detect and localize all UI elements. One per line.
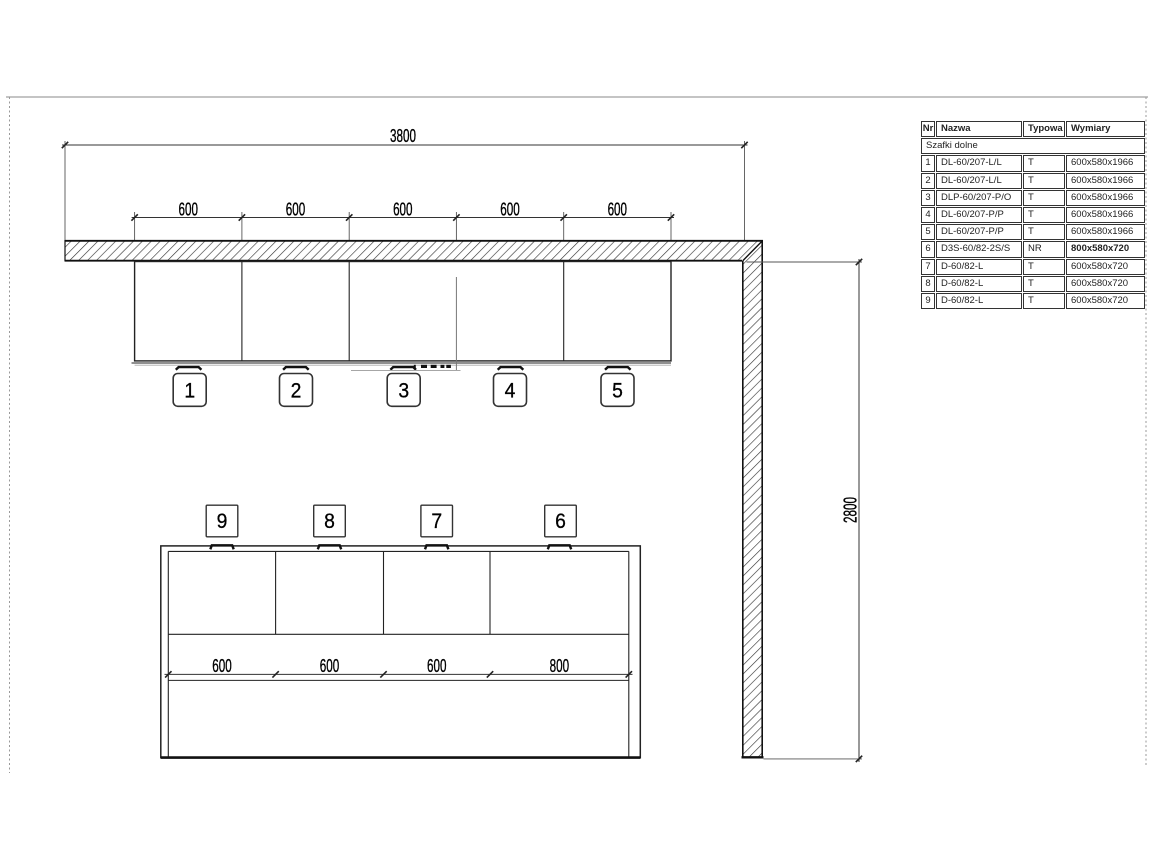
svg-text:600: 600 [608, 200, 627, 220]
svg-text:9: 9 [217, 509, 228, 533]
svg-text:600: 600 [427, 656, 446, 676]
svg-text:600: 600 [286, 200, 305, 220]
svg-text:600: 600 [500, 200, 519, 220]
svg-text:600: 600 [320, 656, 339, 676]
svg-text:600: 600 [178, 200, 197, 220]
svg-text:2: 2 [291, 378, 302, 402]
svg-text:3: 3 [398, 378, 409, 402]
svg-text:800: 800 [550, 656, 569, 676]
svg-text:6: 6 [555, 509, 566, 533]
svg-text:1: 1 [184, 378, 195, 402]
svg-text:4: 4 [505, 378, 516, 402]
svg-text:8: 8 [324, 509, 335, 533]
svg-text:2800: 2800 [841, 497, 861, 523]
svg-text:5: 5 [612, 378, 623, 402]
svg-text:600: 600 [212, 656, 231, 676]
svg-text:3800: 3800 [390, 126, 416, 146]
svg-text:7: 7 [431, 509, 442, 533]
svg-text:600: 600 [393, 200, 412, 220]
